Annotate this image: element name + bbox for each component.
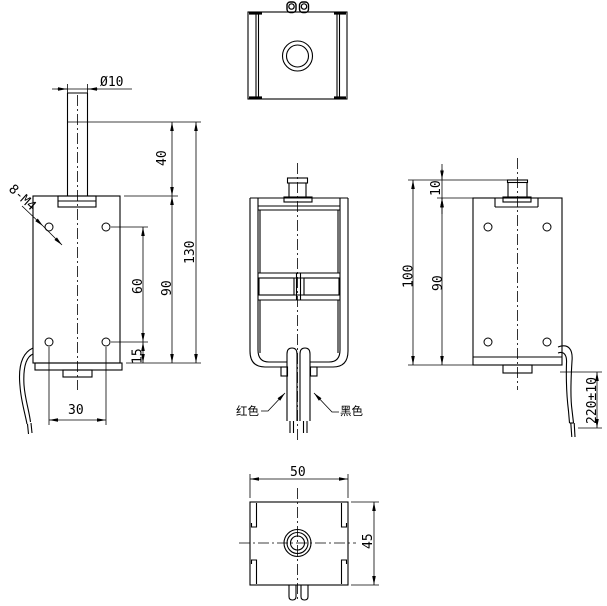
mounting-hole [45,223,53,231]
dimension-depth-45: 45 [351,502,379,585]
dimension-hole-offset-15: 15 [131,342,146,364]
wire-terminal [287,2,296,13]
frame-outline [250,198,348,367]
side-view: Ø10 40 90 130 60 15 [5,75,201,434]
dimension-overall-height-130: 130 [183,122,198,363]
bottom-view-outline [250,502,348,585]
dimension-shaft-diameter: Ø10 [52,75,132,93]
dimension-body-90-right: 90 [431,198,446,365]
dim-label-15: 15 [131,348,146,364]
dimension-width-50: 50 [250,465,348,498]
dim-label-90: 90 [160,280,175,296]
wire-label-red: 红色 [236,393,285,418]
lead-wire-black [300,348,310,433]
mounting-hole [102,223,110,231]
bottom-tab [311,367,318,376]
dim-label-shaft-dia: Ø10 [100,75,123,90]
dim-label-50: 50 [290,465,306,480]
terminal-tab [301,585,308,600]
bottom-flange [35,363,122,377]
mounting-hole [543,338,551,346]
wire-terminal [300,2,309,13]
mounting-hole [484,338,492,346]
lead-wire-left [20,348,33,434]
dim-label-40: 40 [155,150,170,166]
mounting-hole [45,338,53,346]
dim-label-10: 10 [429,180,444,196]
thread-callout-8-M4: 8-M4 [5,182,62,245]
dimension-overall-100: 100 [402,180,417,365]
coil-window [304,278,339,295]
red-wire-label: 红色 [236,404,259,418]
corner-tab [252,503,257,527]
top-flange [58,196,96,207]
dim-label-130: 130 [183,241,198,264]
corner-tab [342,503,347,527]
top-view-outline [248,12,347,99]
dim-label-lead-length: 220±10 [585,377,600,424]
right-side-view: 10 100 90 220±10 [402,158,603,437]
coil-window [259,278,294,295]
mounting-hole [484,223,492,231]
shaft-bore-inner [287,45,309,67]
lead-wire-red [287,348,297,433]
mounting-hole [543,223,551,231]
front-view: 红色 黑色 [236,163,363,443]
top-view [248,2,347,99]
dim-label-30: 30 [68,403,84,418]
dim-label-90-right: 90 [431,275,446,291]
bottom-view: 50 45 [239,465,379,600]
dim-label-100: 100 [402,265,417,288]
dimension-body-height-90: 90 [160,196,175,363]
wire-label-black: 黑色 [314,393,363,418]
coil-bobbin [258,210,340,353]
corner-tab [342,560,347,584]
dim-label-45: 45 [361,533,376,549]
thread-callout-label: 8-M4 [5,182,38,214]
dim-label-60: 60 [131,278,146,294]
black-wire-label: 黑色 [340,404,363,418]
mounting-hole [102,338,110,346]
technical-drawing: Ø10 40 90 130 60 15 [0,0,607,606]
lead-wire-right-view [558,346,575,437]
dimension-hole-span-60: 60 [131,227,146,342]
dimension-shaft-extension-40: 40 [155,122,172,196]
terminal-tab [289,585,296,600]
drawing-canvas: Ø10 40 90 130 60 15 [0,0,607,606]
corner-tab [252,560,257,584]
